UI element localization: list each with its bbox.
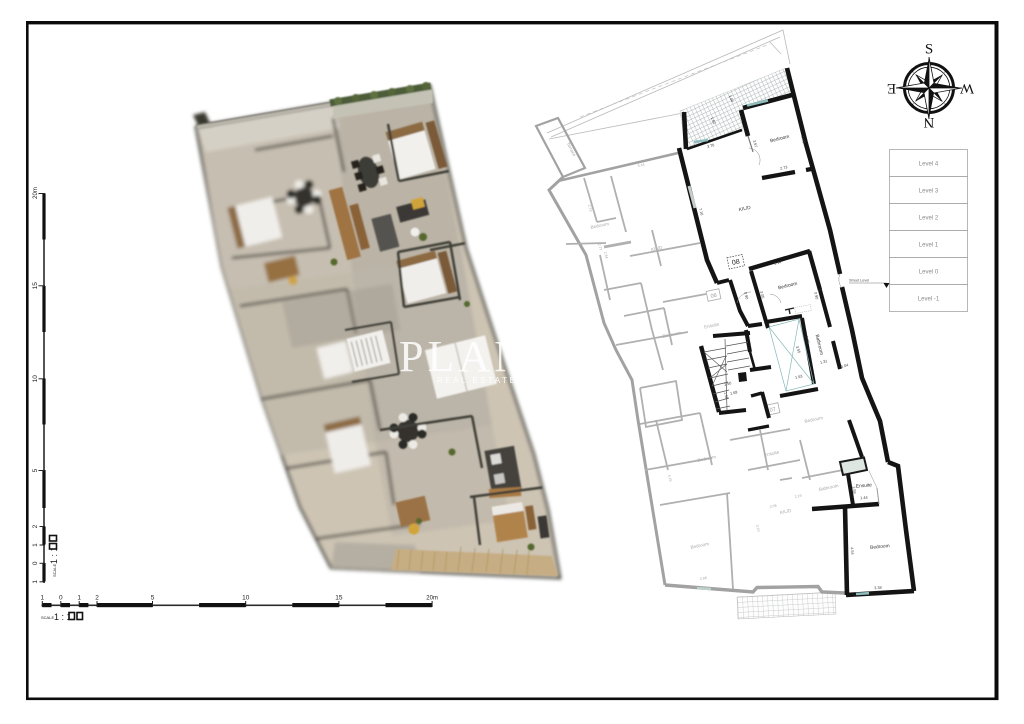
- svg-text:5.44: 5.44: [637, 163, 645, 168]
- svg-text:10: 10: [32, 375, 39, 383]
- svg-text:2.73: 2.73: [587, 204, 593, 212]
- svg-text:2.19: 2.19: [794, 494, 802, 499]
- svg-text:07: 07: [769, 407, 776, 414]
- svg-text:1: 1: [77, 595, 81, 602]
- svg-text:3.67: 3.67: [752, 140, 758, 148]
- svg-text:PLAN: PLAN: [399, 332, 530, 381]
- svg-text:3.75: 3.75: [800, 136, 806, 144]
- svg-text:Level 4: Level 4: [919, 162, 939, 168]
- svg-text:Street Level: Street Level: [849, 279, 869, 283]
- svg-text:06: 06: [710, 293, 717, 300]
- svg-text:1.58: 1.58: [852, 486, 857, 494]
- svg-text:3.70: 3.70: [707, 143, 715, 149]
- svg-text:KIL/D: KIL/D: [738, 205, 752, 213]
- svg-text:1: 1: [32, 580, 39, 584]
- svg-text:Ensuite: Ensuite: [856, 482, 873, 489]
- svg-text:Level -1: Level -1: [918, 297, 940, 303]
- svg-text:20m: 20m: [426, 596, 438, 602]
- svg-text:Level 1: Level 1: [919, 243, 939, 249]
- svg-text:0.90: 0.90: [813, 292, 819, 300]
- svg-text:W: W: [959, 80, 974, 96]
- svg-text:REAL ESTATE: REAL ESTATE: [437, 376, 517, 385]
- svg-text:1.69: 1.69: [730, 390, 738, 395]
- svg-text:Bedroom: Bedroom: [662, 330, 681, 339]
- svg-text:5: 5: [32, 468, 39, 472]
- svg-text:2: 2: [32, 524, 39, 528]
- svg-text:3.38: 3.38: [874, 586, 882, 590]
- svg-text:3.14: 3.14: [774, 260, 782, 266]
- svg-text:2.84: 2.84: [603, 251, 609, 259]
- svg-text:3.10: 3.10: [755, 524, 761, 532]
- svg-text:15: 15: [32, 282, 39, 290]
- svg-text:Bathroom: Bathroom: [818, 483, 839, 492]
- svg-text:1.53: 1.53: [795, 374, 803, 379]
- svg-text:1: 1: [32, 543, 39, 547]
- svg-text:1.55: 1.55: [723, 392, 729, 400]
- svg-text:KIL/D: KIL/D: [780, 508, 793, 515]
- svg-text:0: 0: [32, 561, 39, 565]
- svg-text:1.04: 1.04: [841, 363, 849, 369]
- svg-text:5: 5: [151, 595, 155, 602]
- svg-text:Bedroom: Bedroom: [690, 541, 709, 550]
- svg-text:2.73: 2.73: [780, 165, 788, 170]
- svg-text:1: 1: [40, 595, 44, 602]
- svg-text:Ensuite: Ensuite: [764, 449, 780, 457]
- svg-text:N: N: [923, 114, 934, 130]
- svg-text:SCALE: SCALE: [52, 564, 57, 577]
- svg-text:2.86: 2.86: [700, 576, 707, 581]
- svg-text:Bathroom: Bathroom: [814, 334, 825, 356]
- svg-text:20m: 20m: [33, 187, 39, 199]
- svg-text:Bedroom: Bedroom: [770, 134, 790, 145]
- svg-text:4.54: 4.54: [850, 547, 855, 555]
- svg-text:4.15: 4.15: [667, 474, 673, 482]
- svg-text:1.31: 1.31: [820, 359, 828, 365]
- svg-text:Bedroom: Bedroom: [804, 415, 823, 424]
- svg-text:2: 2: [95, 595, 99, 602]
- svg-text:S: S: [925, 42, 933, 58]
- svg-text:Ensuite: Ensuite: [704, 321, 720, 329]
- svg-text:10: 10: [242, 595, 250, 602]
- svg-text:3.55: 3.55: [795, 346, 801, 354]
- svg-text:E: E: [887, 80, 896, 96]
- svg-text:15: 15: [335, 595, 343, 602]
- svg-text:1.50: 1.50: [724, 381, 732, 386]
- svg-text:Bedroom: Bedroom: [590, 221, 609, 230]
- svg-text:Bedroom: Bedroom: [778, 281, 798, 292]
- svg-text:Level 3: Level 3: [919, 189, 939, 195]
- svg-text:0.90: 0.90: [743, 292, 749, 300]
- svg-text:1.44: 1.44: [860, 496, 868, 501]
- svg-text:7.16: 7.16: [698, 208, 704, 216]
- svg-text:SCALE: SCALE: [41, 615, 54, 620]
- svg-text:Level 0: Level 0: [919, 270, 939, 276]
- svg-text:2.08: 2.08: [769, 504, 777, 509]
- svg-text:2.77: 2.77: [597, 243, 603, 251]
- svg-text:Bedroom: Bedroom: [870, 543, 890, 551]
- svg-text:0: 0: [59, 595, 63, 602]
- svg-text:Bedroom: Bedroom: [697, 454, 716, 463]
- svg-text:Level 2: Level 2: [919, 216, 939, 222]
